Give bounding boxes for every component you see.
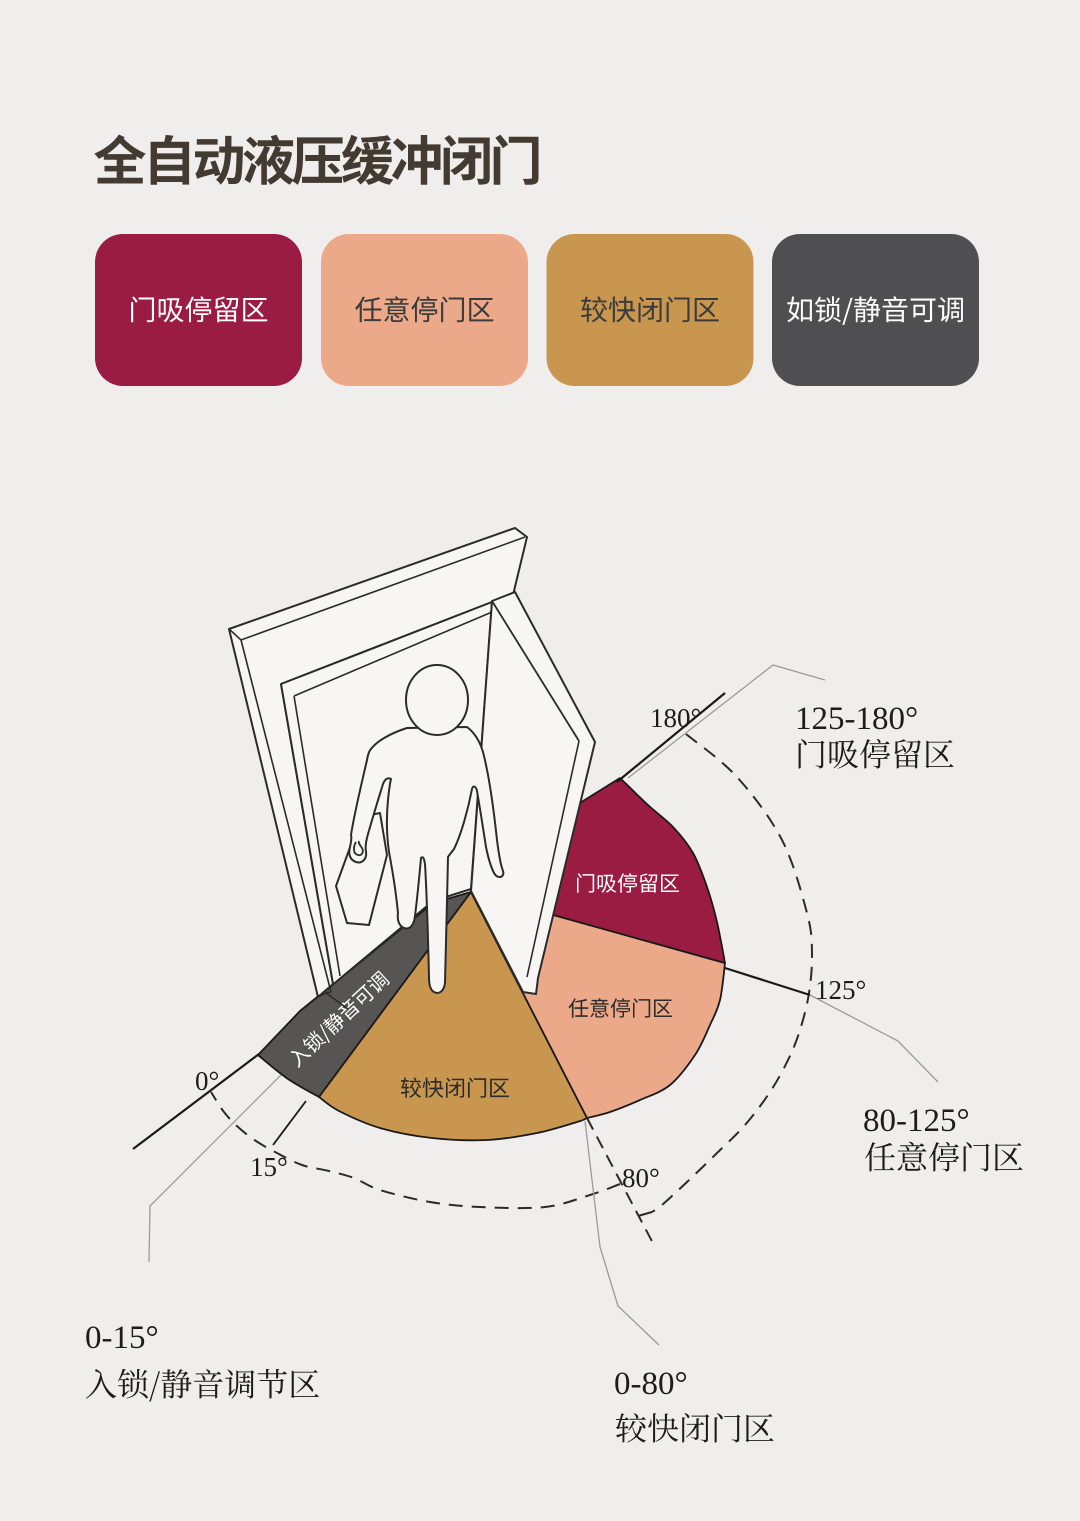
svg-text:15°: 15° <box>250 1152 288 1182</box>
svg-text:80°: 80° <box>622 1163 660 1193</box>
svg-text:180°: 180° <box>650 703 701 733</box>
svg-text:0-15°: 0-15° <box>85 1320 159 1356</box>
svg-text:0°: 0° <box>195 1066 219 1096</box>
svg-text:125°: 125° <box>815 975 866 1005</box>
svg-text:0-80°: 0-80° <box>614 1366 688 1402</box>
svg-text:80-125°: 80-125° <box>863 1103 970 1139</box>
svg-text:125-180°: 125-180° <box>795 701 918 737</box>
